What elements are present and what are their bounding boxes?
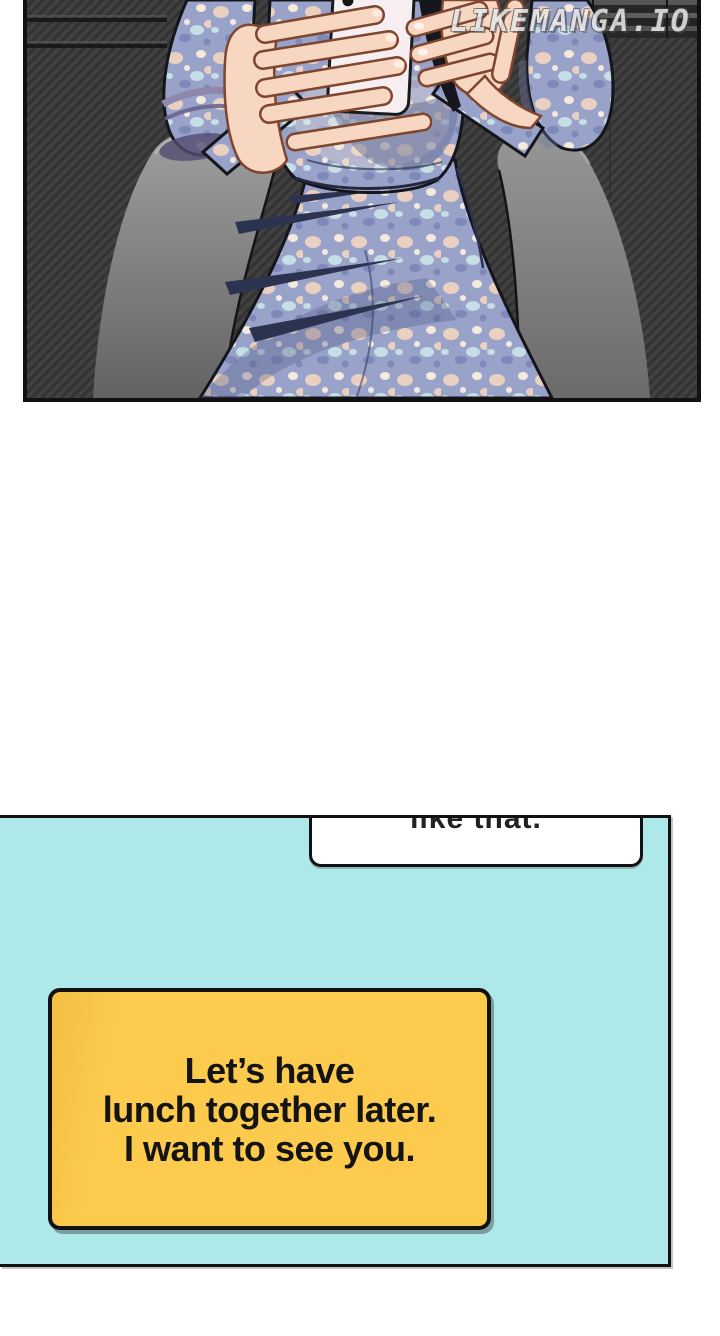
dialog-panel: like that. Let’s have lunch together lat… [0,815,671,1267]
fingernail [394,60,405,68]
caption-line: Let’s have [185,1051,355,1090]
caption-line: I want to see you. [124,1129,415,1168]
speech-bubble: like that. [309,818,643,867]
site-watermark: LIKEMANGA.IO [450,4,691,39]
fingernail [372,10,382,17]
caption-box: Let’s have lunch together later. I want … [48,988,491,1230]
caption-line: lunch together later. [103,1090,437,1129]
speech-bubble-text: like that. [312,818,640,836]
manga-art-panel [23,0,701,402]
manga-art [27,0,697,398]
fingernail [386,34,397,42]
